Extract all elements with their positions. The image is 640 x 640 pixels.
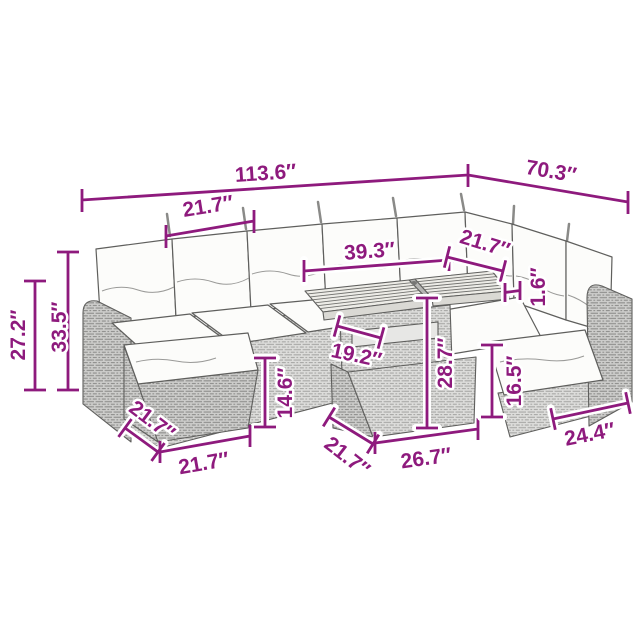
dim-table-height-label: 28.7″ bbox=[434, 338, 457, 389]
diagram-canvas: 113.6″ 70.3″ 21.7″ 39.3″ 21.7″ 1.6″ bbox=[0, 0, 640, 640]
dim-ottoman-height-label: 14.6″ bbox=[274, 368, 297, 419]
dim-table-width-label: 26.7″ bbox=[399, 444, 453, 474]
frame-post bbox=[167, 214, 170, 236]
dim-end-module-depth-label: 24.4″ bbox=[563, 418, 617, 450]
product-dimension-diagram: 113.6″ 70.3″ 21.7″ 39.3″ 21.7″ 1.6″ bbox=[0, 0, 640, 640]
frame-post bbox=[318, 202, 321, 222]
dim-seat-height-label: 16.5″ bbox=[503, 356, 526, 407]
dim-backrest-height: 33.5″ bbox=[48, 252, 79, 390]
dim-tabletop-length-label: 39.3″ bbox=[343, 238, 396, 265]
dim-armrest-height: 27.2″ bbox=[7, 281, 46, 390]
dim-armrest-height-label: 27.2″ bbox=[7, 310, 30, 361]
frame-post bbox=[393, 198, 396, 216]
dim-seat-module-width-label: 21.7″ bbox=[181, 191, 235, 222]
umbrella-hole bbox=[411, 281, 417, 285]
frame-post bbox=[513, 206, 514, 224]
dim-right-section-width: 70.3″ bbox=[468, 156, 628, 214]
frame-post bbox=[243, 208, 246, 229]
frame-post bbox=[567, 224, 569, 241]
dim-ottoman-width-label: 21.7″ bbox=[177, 448, 231, 479]
dim-overall-width: 113.6″ bbox=[82, 160, 468, 212]
dim-tabletop-thickness-label: 1.6″ bbox=[527, 267, 550, 306]
back-cushion bbox=[172, 231, 251, 318]
dim-backrest-height-label: 33.5″ bbox=[48, 302, 71, 353]
dim-overall-width-label: 113.6″ bbox=[234, 160, 297, 187]
dim-seat-height: 16.5″ bbox=[481, 345, 526, 417]
dim-right-section-width-label: 70.3″ bbox=[524, 156, 578, 187]
frame-post bbox=[461, 194, 464, 210]
